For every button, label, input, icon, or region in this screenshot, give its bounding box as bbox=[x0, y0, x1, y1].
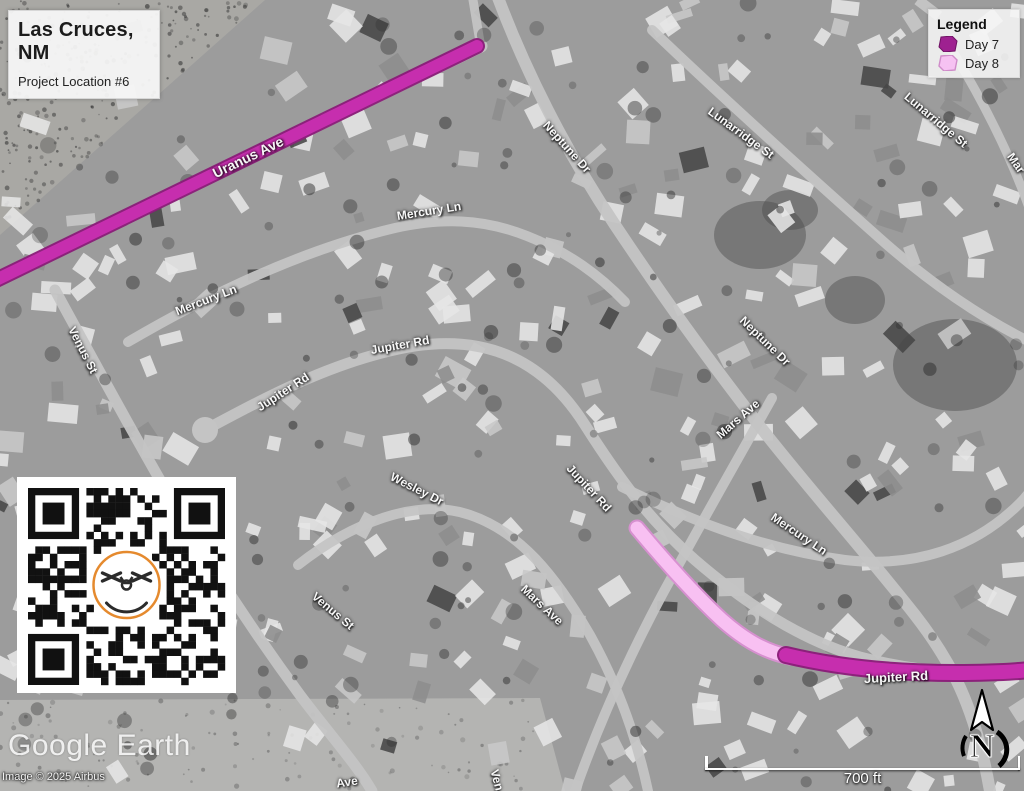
qr-center-logo bbox=[91, 549, 163, 621]
map-canvas: Uranus AveMercury LnMercury LnMercury Ln… bbox=[0, 0, 1024, 791]
legend: Legend Day 7 Day 8 bbox=[928, 9, 1020, 78]
day8-swatch-icon bbox=[937, 55, 959, 71]
title-box: Las Cruces, NM Project Location #6 bbox=[8, 10, 160, 99]
north-letter: N bbox=[952, 728, 1012, 766]
north-arrow: N bbox=[952, 686, 1012, 776]
legend-label-day7: Day 7 bbox=[965, 37, 999, 52]
day7-swatch-icon bbox=[937, 36, 959, 52]
legend-item-day7: Day 7 bbox=[937, 36, 1013, 52]
qr-code bbox=[17, 477, 236, 693]
google-earth-watermark: Google Earth bbox=[8, 729, 191, 763]
legend-title: Legend bbox=[937, 16, 1013, 32]
qr-pattern bbox=[17, 477, 236, 693]
legend-item-day8: Day 8 bbox=[937, 55, 1013, 71]
copyright-text: Image © 2025 Airbus bbox=[2, 771, 105, 783]
map-title: Las Cruces, NM bbox=[18, 19, 150, 65]
legend-label-day8: Day 8 bbox=[965, 56, 999, 71]
project-location-label: Project Location #6 bbox=[18, 74, 150, 89]
